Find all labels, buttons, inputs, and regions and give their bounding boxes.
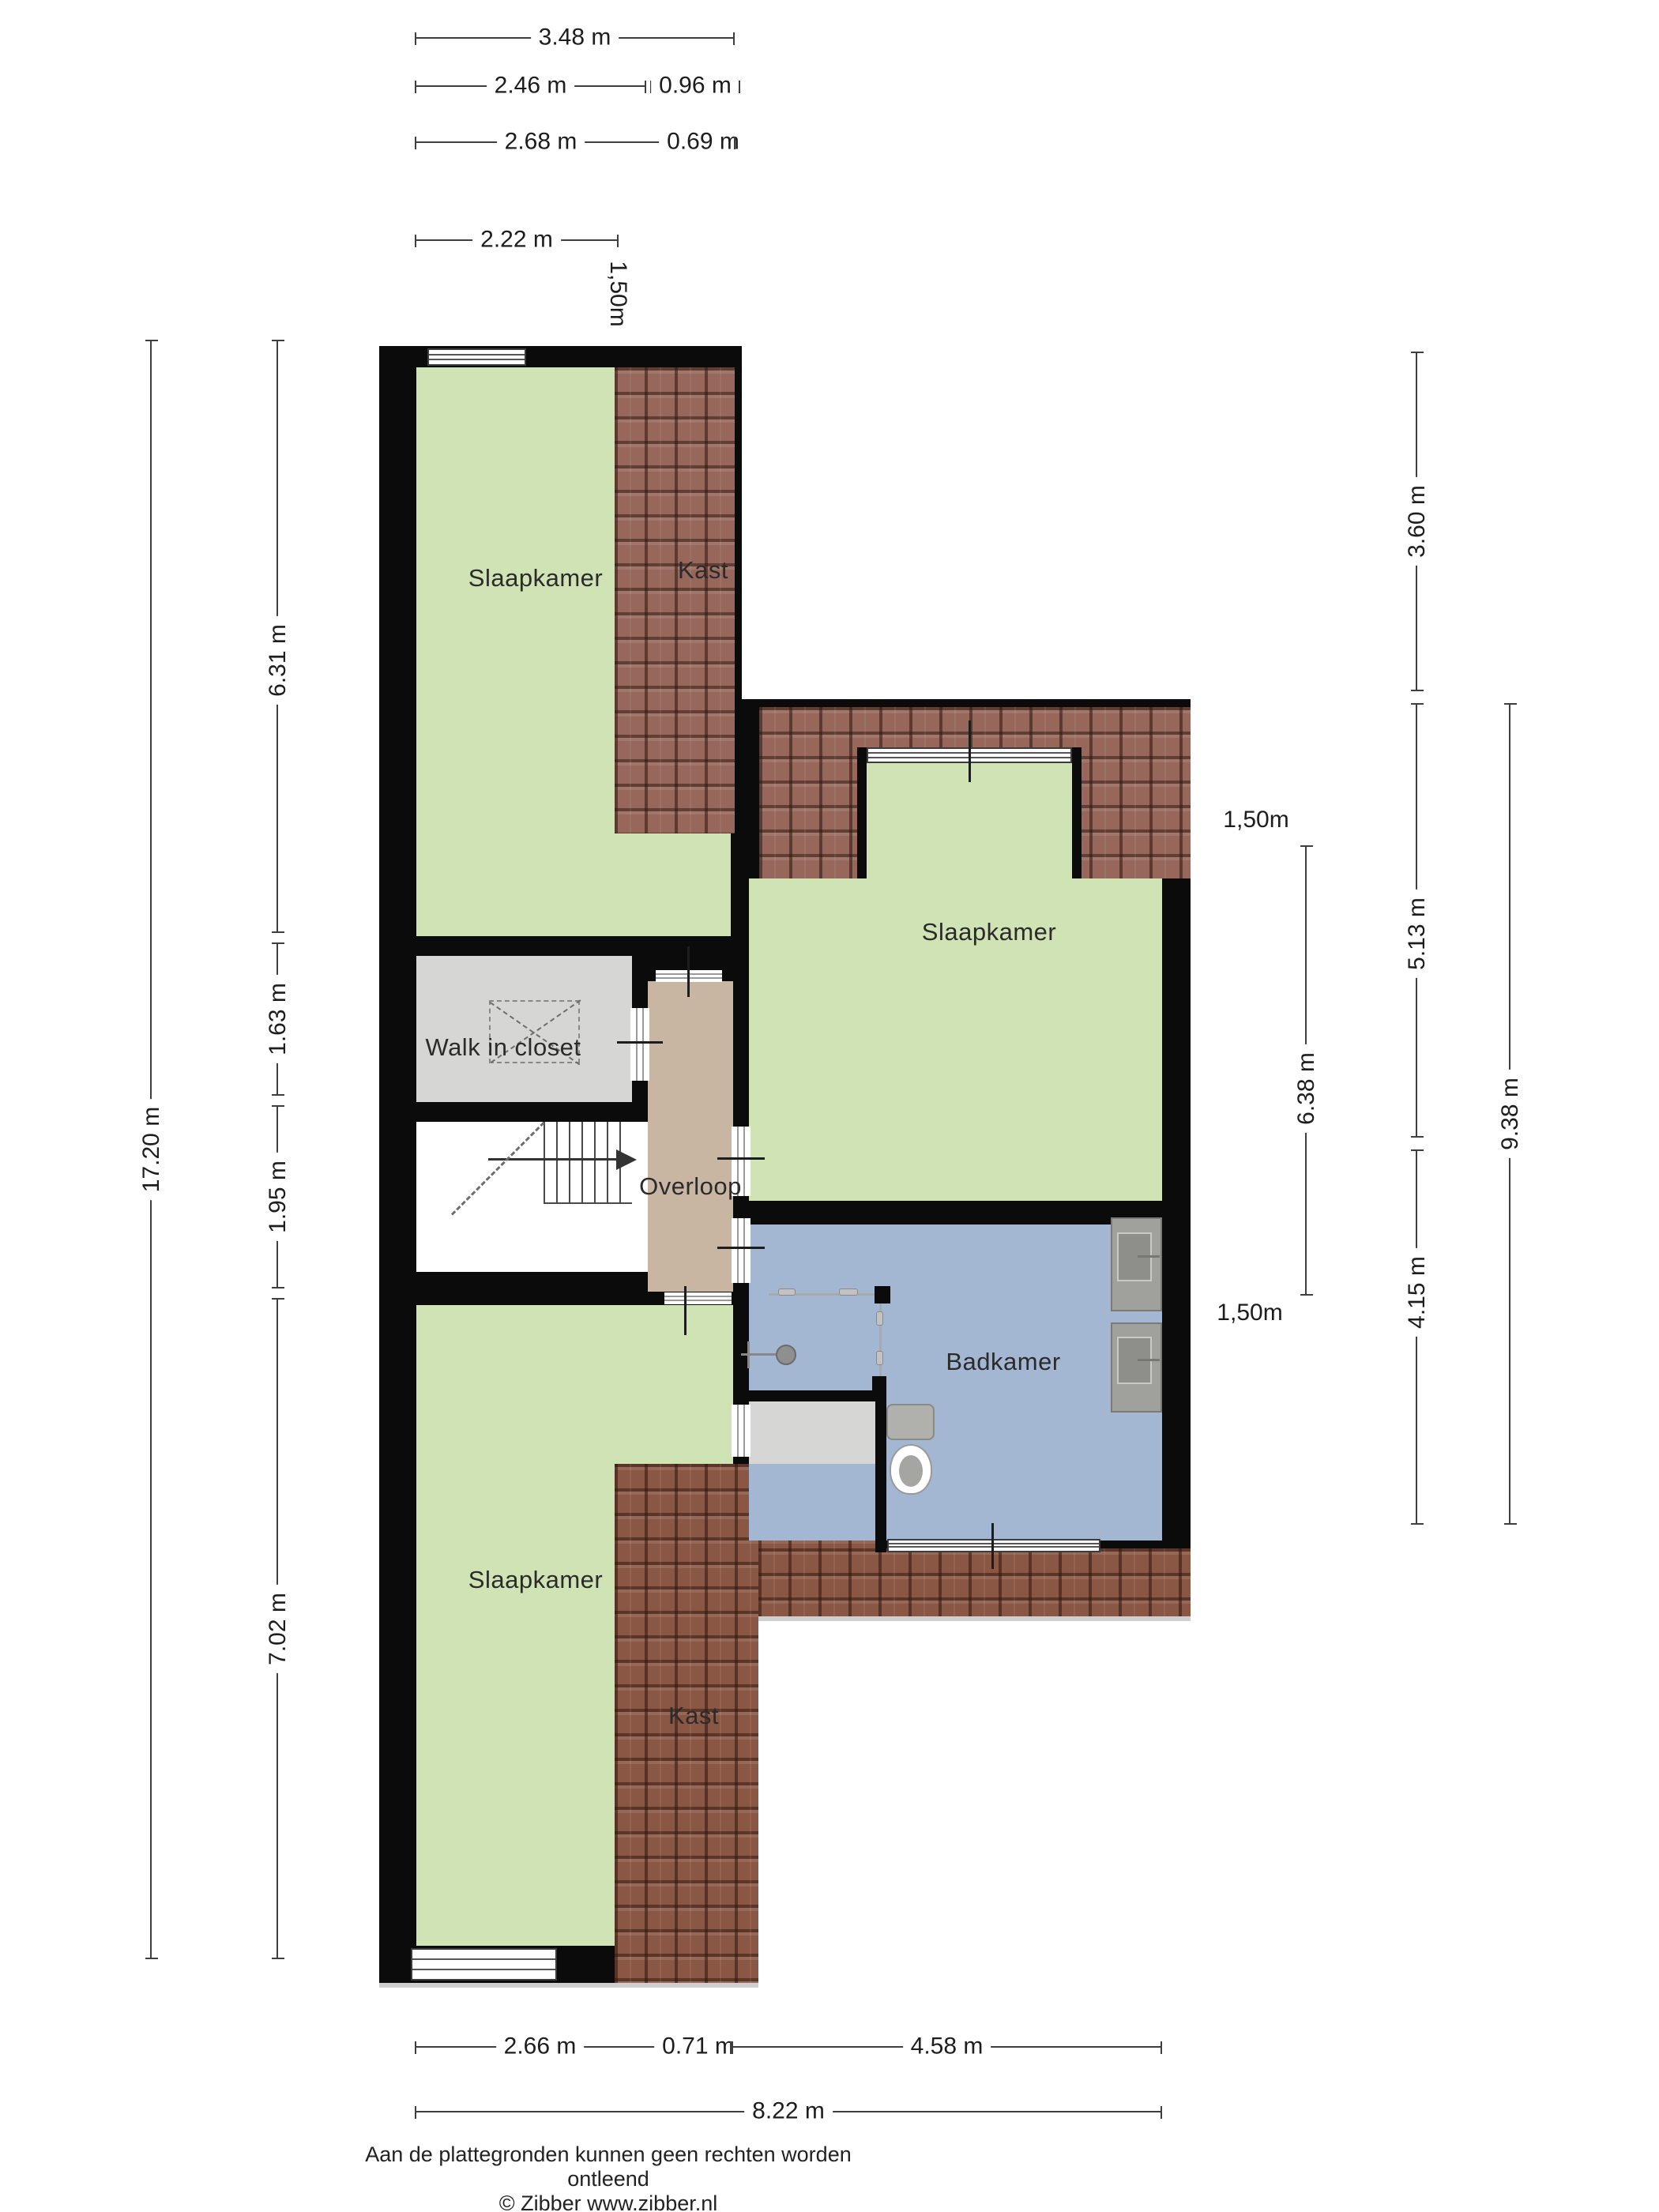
shower-handle-2	[839, 1288, 858, 1296]
dormer-wall-right	[1072, 747, 1082, 878]
dim-left-163: 1.63 m	[276, 942, 278, 1096]
dim-bottom-266-label: 2.66 m	[496, 2033, 585, 2060]
door-walk-in-closet	[630, 1008, 649, 1081]
roof-shadow-bottom-band	[758, 1616, 1191, 1621]
shower-post-corner	[875, 1286, 890, 1303]
dim-left-1720-label: 17.20 m	[138, 1099, 165, 1200]
dim-top-096: 0.96 m	[650, 85, 740, 87]
dim-left-1720: 17.20 m	[150, 340, 152, 1959]
wall-above-shower-closet	[749, 1390, 875, 1401]
window-bedroom-bottom-left	[411, 1948, 557, 1981]
footer-line1: Aan de plattegronden kunnen geen rechten…	[332, 2142, 885, 2191]
dim-top-height-label: 1,50m	[604, 261, 631, 326]
dim-top-222: 2.22 m	[415, 239, 619, 241]
dim-left-702: 7.02 m	[276, 1298, 278, 1959]
floor-plan-page: Slaapkamer Kast Slaapkamer Walk in close…	[0, 0, 1659, 2212]
dim-right-513: 5.13 m	[1416, 703, 1417, 1138]
label-bathroom: Badkamer	[946, 1348, 1060, 1376]
dim-right-415: 4.15 m	[1416, 1149, 1417, 1525]
dim-bottom-822-label: 8.22 m	[744, 2097, 833, 2124]
dim-right-360: 3.60 m	[1416, 352, 1417, 691]
dim-top-069-label: 0.69 m	[659, 128, 747, 155]
shower-handle-3	[876, 1311, 883, 1326]
dim-bottom-266: 2.66 m	[415, 2046, 665, 2048]
dim-top-246: 2.46 m	[415, 85, 646, 87]
dim-top-348: 3.48 m	[415, 37, 735, 39]
dim-bottom-071-label: 0.71 m	[654, 2033, 743, 2060]
door-landing-right-lower	[732, 1218, 750, 1283]
roof-shadow-bottom-closet	[615, 1983, 758, 1988]
dim-bottom-822: 8.22 m	[415, 2111, 1162, 2112]
window-bedroom-top-left	[427, 348, 526, 366]
label-closet-top: Kast	[678, 556, 728, 585]
label-walk-in-closet: Walk in closet	[425, 1033, 581, 1062]
door-tick-walk-in-closet	[617, 1041, 663, 1044]
door-tick-landing-top	[687, 946, 690, 997]
label-landing: Overloop	[639, 1172, 742, 1201]
label-bedroom-right: Slaapkamer	[922, 918, 1056, 946]
sink-faucet-2	[1138, 1359, 1160, 1361]
dim-right-938: 9.38 m	[1509, 703, 1510, 1525]
footer-disclaimer: Aan de plattegronden kunnen geen rechten…	[332, 2142, 885, 2212]
dim-top-246-label: 2.46 m	[487, 72, 575, 99]
room-bathroom	[749, 1224, 1162, 1540]
plan-shadow-bottom	[379, 1983, 616, 1988]
stairs-arrow-head	[616, 1149, 637, 1170]
window-bathroom	[887, 1539, 1100, 1552]
dim-right-height-top-label: 1,50m	[1223, 807, 1288, 833]
dim-right-360-label: 3.60 m	[1404, 477, 1431, 566]
dim-left-195-label: 1.95 m	[265, 1153, 292, 1241]
door-shower-closet	[732, 1405, 750, 1457]
label-closet-bottom: Kast	[668, 1702, 719, 1730]
dim-right-height-bottom-label: 1,50m	[1217, 1300, 1282, 1326]
dim-left-163-label: 1.63 m	[265, 975, 292, 1063]
dim-top-348-label: 3.48 m	[531, 24, 619, 51]
dim-top-268: 2.68 m	[415, 141, 667, 143]
label-bedroom-top-left: Slaapkamer	[468, 564, 603, 592]
dim-bottom-458: 4.58 m	[732, 2046, 1162, 2048]
shower-arm	[752, 1353, 779, 1356]
dim-top-268-label: 2.68 m	[497, 128, 585, 155]
door-tick-landing-right-upper	[717, 1157, 765, 1160]
shower-handle-1	[778, 1288, 796, 1296]
dim-top-222-label: 2.22 m	[472, 226, 561, 253]
label-bedroom-bottom-left: Slaapkamer	[468, 1566, 603, 1594]
shower-valve-h	[741, 1353, 755, 1356]
room-landing	[648, 981, 733, 1292]
dim-right-415-label: 4.15 m	[1404, 1248, 1431, 1337]
wall-right-of-shower-closet	[875, 1390, 886, 1552]
window-bathroom-tick	[991, 1523, 994, 1569]
shower-handle-4	[876, 1351, 883, 1365]
dim-bottom-071: 0.71 m	[665, 2046, 732, 2048]
dim-left-631: 6.31 m	[276, 340, 278, 933]
shower-post-bottom	[872, 1376, 886, 1394]
toilet-bowl-inner	[899, 1455, 923, 1487]
dim-right-938-label: 9.38 m	[1497, 1070, 1524, 1158]
door-tick-landing-bottom	[684, 1286, 687, 1335]
room-bedroom-bottom-left	[416, 1464, 615, 1946]
room-bedroom-top-left-lower	[615, 833, 731, 936]
dim-left-702-label: 7.02 m	[265, 1585, 292, 1673]
dim-right-638: 6.38 m	[1305, 845, 1307, 1296]
dormer-wall-left	[857, 747, 867, 878]
dim-left-631-label: 6.31 m	[265, 616, 292, 705]
window-dormer-tick	[969, 720, 971, 782]
dim-right-513-label: 5.13 m	[1404, 890, 1431, 978]
dim-top-069: 0.69 m	[671, 141, 735, 143]
footer-line2: © Zibber www.zibber.nl	[332, 2191, 885, 2212]
dim-left-195: 1.95 m	[276, 1105, 278, 1288]
shower-closet	[749, 1401, 875, 1464]
dim-right-638-label: 6.38 m	[1293, 1044, 1320, 1133]
room-bedroom-top-left	[416, 367, 615, 936]
dim-top-096-label: 0.96 m	[651, 72, 739, 99]
sink-faucet-1	[1138, 1255, 1160, 1258]
door-tick-landing-right-lower	[717, 1247, 765, 1249]
dim-bottom-458-label: 4.58 m	[903, 2033, 991, 2060]
shower-head-icon	[776, 1345, 796, 1365]
toilet-cistern	[886, 1404, 935, 1440]
door-landing-bottom	[664, 1292, 732, 1304]
roof-top-closet	[615, 367, 735, 833]
roof-bottom-band	[758, 1548, 1191, 1616]
